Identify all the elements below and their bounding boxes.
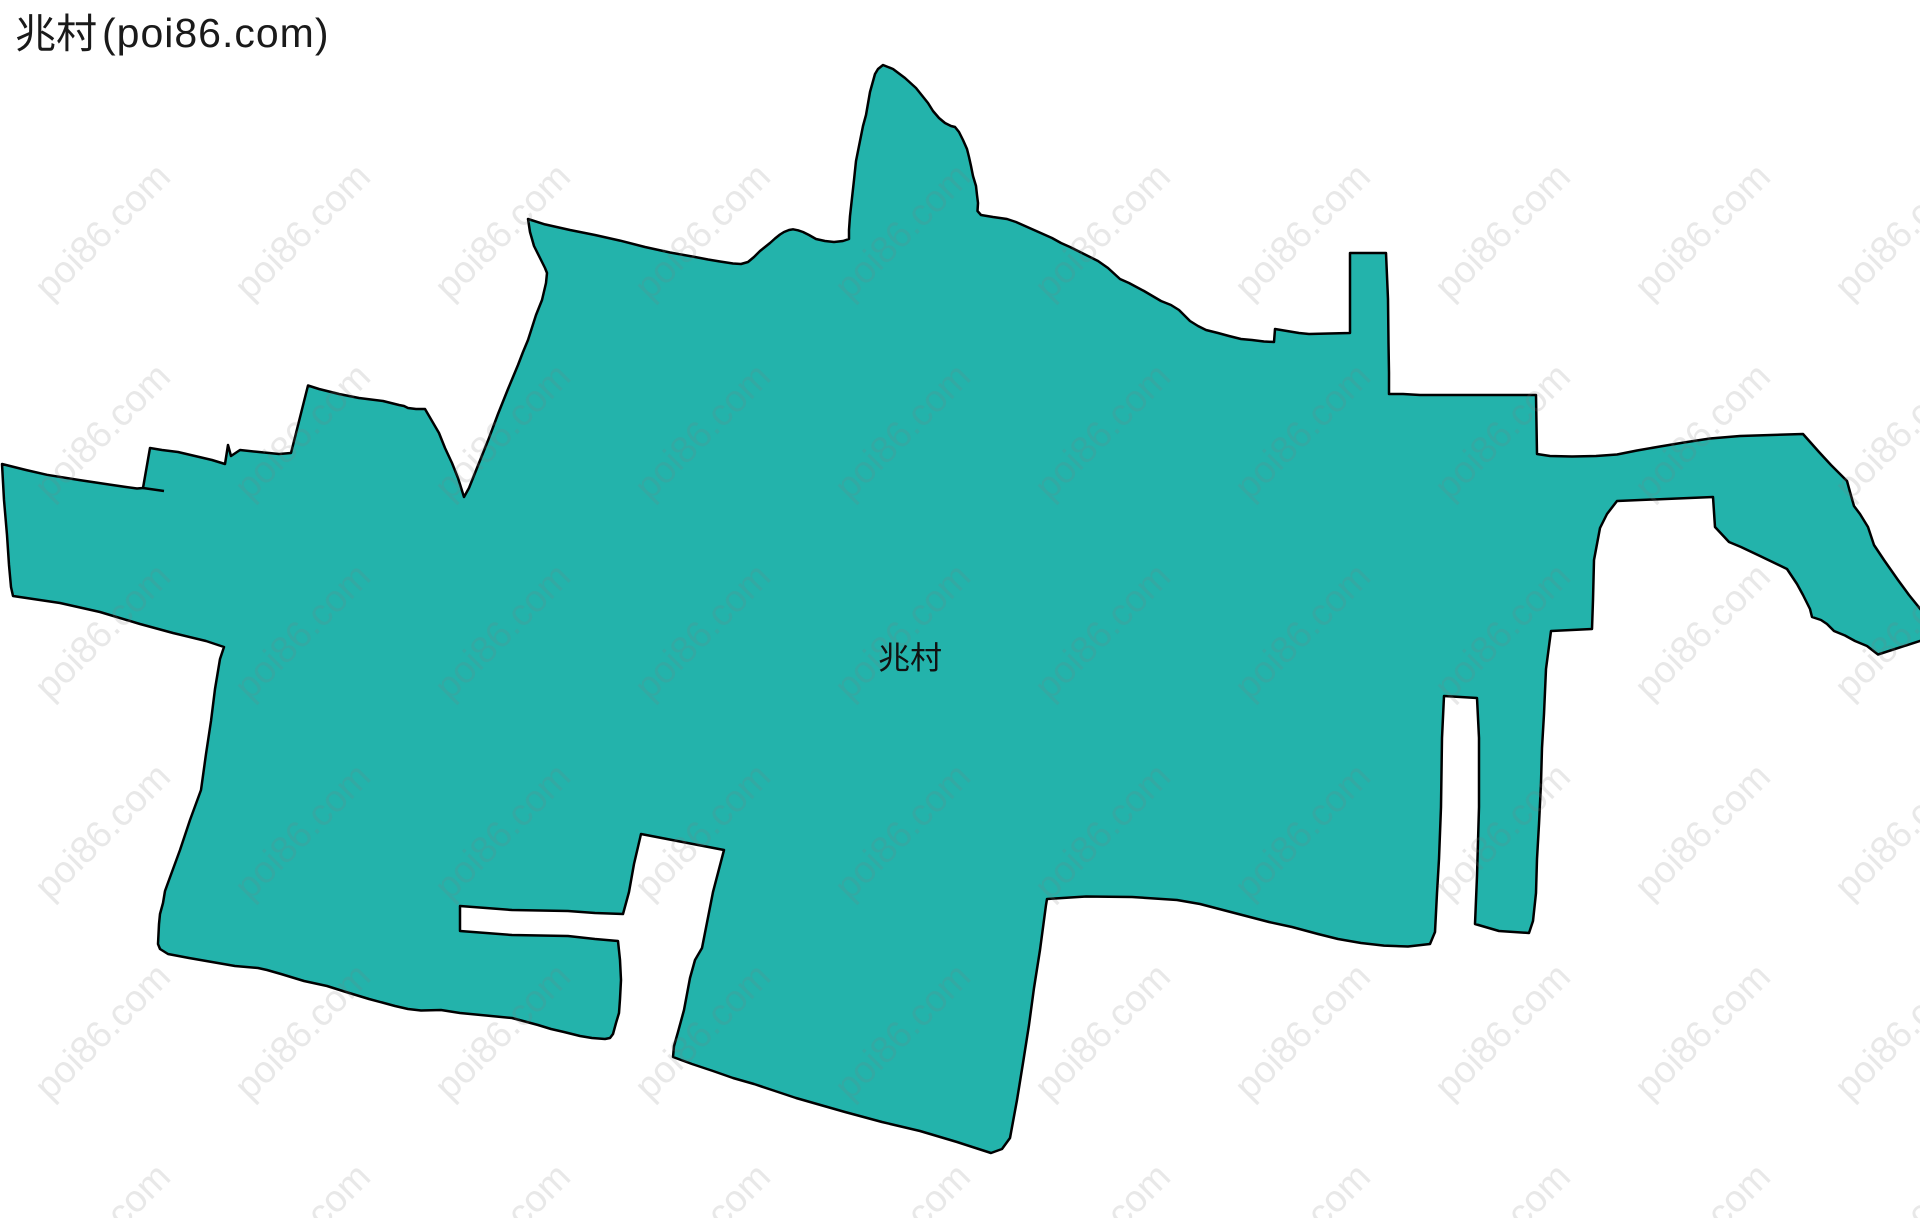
svg-text:(poi86.com): (poi86.com) bbox=[102, 10, 329, 56]
